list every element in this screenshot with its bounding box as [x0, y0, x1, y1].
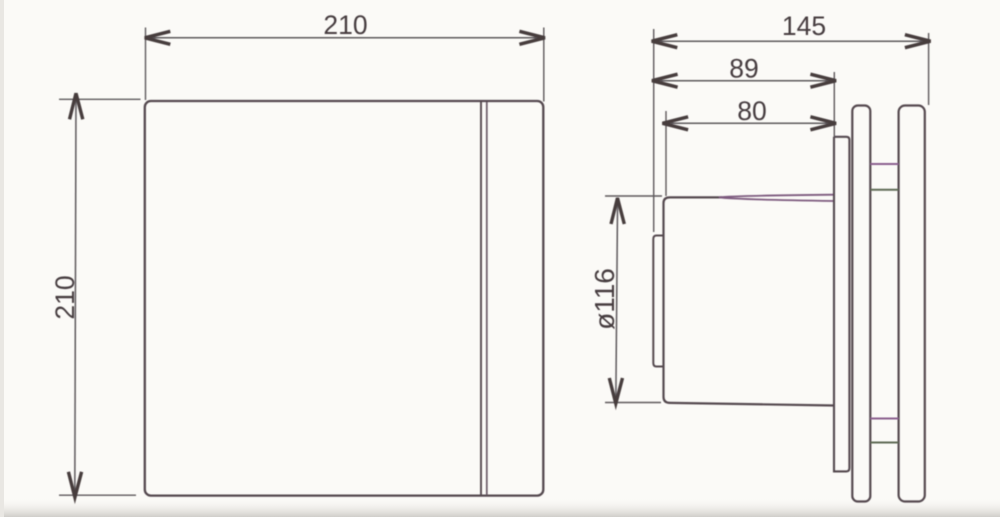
svg-text:80: 80 — [737, 96, 766, 126]
svg-text:ø116: ø116 — [589, 268, 620, 330]
svg-text:145: 145 — [782, 11, 826, 41]
svg-text:210: 210 — [323, 10, 367, 40]
svg-text:89: 89 — [729, 54, 758, 84]
svg-text:210: 210 — [50, 275, 80, 319]
